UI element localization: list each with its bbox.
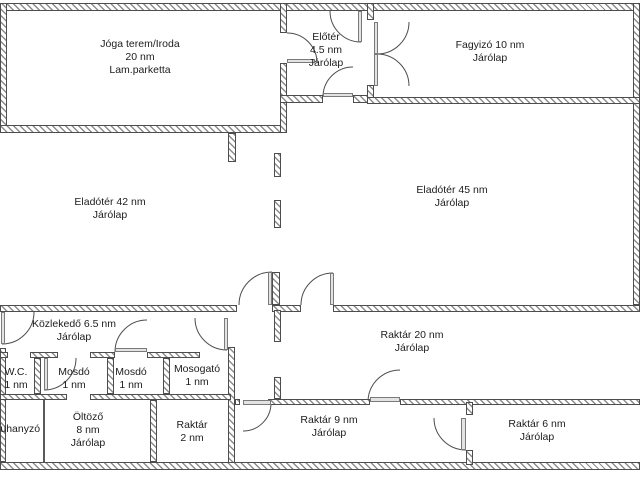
fagyizo-double-door-a-leaf — [374, 22, 378, 54]
raktar9-door-leaf — [243, 400, 271, 405]
wall-segment — [272, 272, 280, 305]
wall-segment — [34, 358, 41, 394]
eloter-label-line: Előtér — [309, 31, 343, 44]
wall-segment — [147, 352, 200, 358]
entrance-door-swing-arc — [2, 312, 34, 344]
mosdo1-door-leaf — [44, 358, 48, 390]
wall-segment — [274, 200, 281, 228]
eladoter-42-label-line: Eladótér 42 nm — [74, 196, 145, 209]
thin-wall-segment — [43, 400, 45, 462]
raktar-6-label: Raktár 6 nmJárólap — [508, 418, 565, 444]
wall-segment — [268, 399, 370, 405]
wall-segment — [367, 97, 640, 104]
wall-segment — [466, 402, 473, 415]
raktar20-door-leaf — [370, 397, 400, 402]
eloter-label: Előtér4.5 nmJárólap — [309, 31, 343, 70]
wall-segment — [0, 394, 67, 400]
eladoter-45-label: Eladótér 45 nmJárólap — [416, 184, 487, 210]
raktar-2-label-line: 2 nm — [177, 432, 208, 445]
wall-segment — [633, 3, 640, 305]
wall-segment — [90, 394, 231, 400]
fagyizo-double-door-b-leaf — [374, 54, 378, 86]
fagyizo-label-line: Fagyizó 10 nm — [456, 39, 525, 52]
eladoter-45-label-line: Járólap — [416, 197, 487, 210]
mosogato-label: Mosogató1 nm — [174, 363, 220, 389]
wall-segment — [150, 400, 157, 462]
joga-terem-iroda-label: Jóga terem/Iroda20 nmLam.parketta — [100, 38, 179, 77]
raktar-9-label: Raktár 9 nmJárólap — [300, 414, 357, 440]
wc-label-line: 1 nm — [4, 379, 27, 392]
joga-terem-iroda-label-line: Jóga terem/Iroda — [100, 38, 179, 51]
eloter-top-door-leaf — [358, 11, 362, 42]
mosogato-label-line: 1 nm — [174, 376, 220, 389]
raktar9-door-swing-arc — [243, 403, 271, 431]
raktar-6-label-line: Járólap — [508, 431, 565, 444]
mosdo-1-label-line: Mosdó — [58, 366, 90, 379]
kozlekedo-label-line: Közlekedő 6.5 nm — [32, 318, 116, 331]
raktar-20-label-line: Járólap — [380, 342, 443, 355]
wall-segment — [163, 358, 170, 394]
fagyizo-double-door-b-swing-arc — [377, 54, 409, 86]
raktar-6-label-line: Raktár 6 nm — [508, 418, 565, 431]
fagyizo-label-line: Járólap — [456, 52, 525, 65]
wall-segment — [280, 3, 287, 33]
wall-segment — [228, 133, 236, 162]
joga-terem-iroda-label-line: Lam.parketta — [100, 64, 179, 77]
wall-segment — [0, 3, 7, 133]
mosdo-2-label-line: 1 nm — [115, 379, 147, 392]
fagyizo-label: Fagyizó 10 nmJárólap — [456, 39, 525, 65]
eloter-label-line: 4.5 nm — [309, 44, 343, 57]
kozlekedo-label-line: Járólap — [32, 331, 116, 344]
raktar6-door-leaf — [461, 418, 466, 450]
entrance-door-leaf — [1, 312, 5, 344]
floor-plan: Jóga terem/Iroda20 nmLam.parkettaElőtér4… — [0, 0, 640, 480]
oltozo-label-line: Öltöző — [71, 411, 105, 424]
kozlekedo-label: Közlekedő 6.5 nmJárólap — [32, 318, 116, 344]
eladoter-42-label: Eladótér 42 nmJárólap — [74, 196, 145, 222]
mosdo-1-label-line: 1 nm — [58, 379, 90, 392]
wall-segment — [367, 3, 374, 20]
door-arcs-layer — [0, 0, 640, 480]
eladoter-door-b-leaf — [330, 273, 334, 305]
raktar-20-label-line: Raktár 20 nm — [380, 329, 443, 342]
wall-segment — [400, 399, 640, 405]
eladoter-door-a-leaf — [268, 272, 272, 305]
wall-segment — [0, 462, 640, 470]
eladoter-42-label-line: Járólap — [74, 209, 145, 222]
wall-segment — [280, 95, 323, 103]
passage-door-leaf — [224, 318, 228, 350]
raktar-9-label-line: Raktár 9 nm — [300, 414, 357, 427]
zuhanyzo-label: Zuhanyzó — [0, 423, 40, 436]
eloter-bottom-door-leaf — [323, 93, 353, 97]
eladoter-door-b-swing-arc — [301, 273, 333, 305]
mosogato-label-line: Mosogató — [174, 363, 220, 376]
raktar-2-label-line: Raktár — [177, 419, 208, 432]
wall-segment — [274, 377, 281, 399]
mosdo-2-label: Mosdó1 nm — [115, 366, 147, 392]
joga-terem-iroda-label-line: 20 nm — [100, 51, 179, 64]
wall-segment — [274, 153, 281, 177]
wall-segment — [466, 450, 473, 465]
mosdo-1-label: Mosdó1 nm — [58, 366, 90, 392]
raktar-2-label: Raktár2 nm — [177, 419, 208, 445]
raktar-9-label-line: Járólap — [300, 427, 357, 440]
wall-segment — [228, 347, 235, 465]
fagyizo-double-door-a-swing-arc — [377, 22, 409, 54]
wall-segment — [107, 358, 114, 394]
passage-door-swing-arc — [195, 318, 227, 350]
oltozo-label-line: 8 nm — [71, 424, 105, 437]
wall-segment — [0, 125, 287, 133]
oltozo-label-line: Járólap — [71, 437, 105, 450]
wall-segment — [0, 3, 640, 11]
mosdo2-door-leaf — [115, 348, 147, 352]
wall-segment — [0, 352, 8, 358]
wc-label: W.C.1 nm — [4, 366, 27, 392]
wc-label-line: W.C. — [4, 366, 27, 379]
zuhanyzo-label-line: Zuhanyzó — [0, 423, 40, 436]
wall-segment — [0, 305, 237, 312]
eladoter-45-label-line: Eladótér 45 nm — [416, 184, 487, 197]
oltozo-label: Öltöző8 nmJárólap — [71, 411, 105, 450]
wall-segment — [235, 399, 240, 405]
wall-segment — [274, 310, 281, 342]
wall-segment — [333, 305, 640, 312]
raktar-20-label: Raktár 20 nmJárólap — [380, 329, 443, 355]
mosdo-2-label-line: Mosdó — [115, 366, 147, 379]
eloter-label-line: Járólap — [309, 57, 343, 70]
